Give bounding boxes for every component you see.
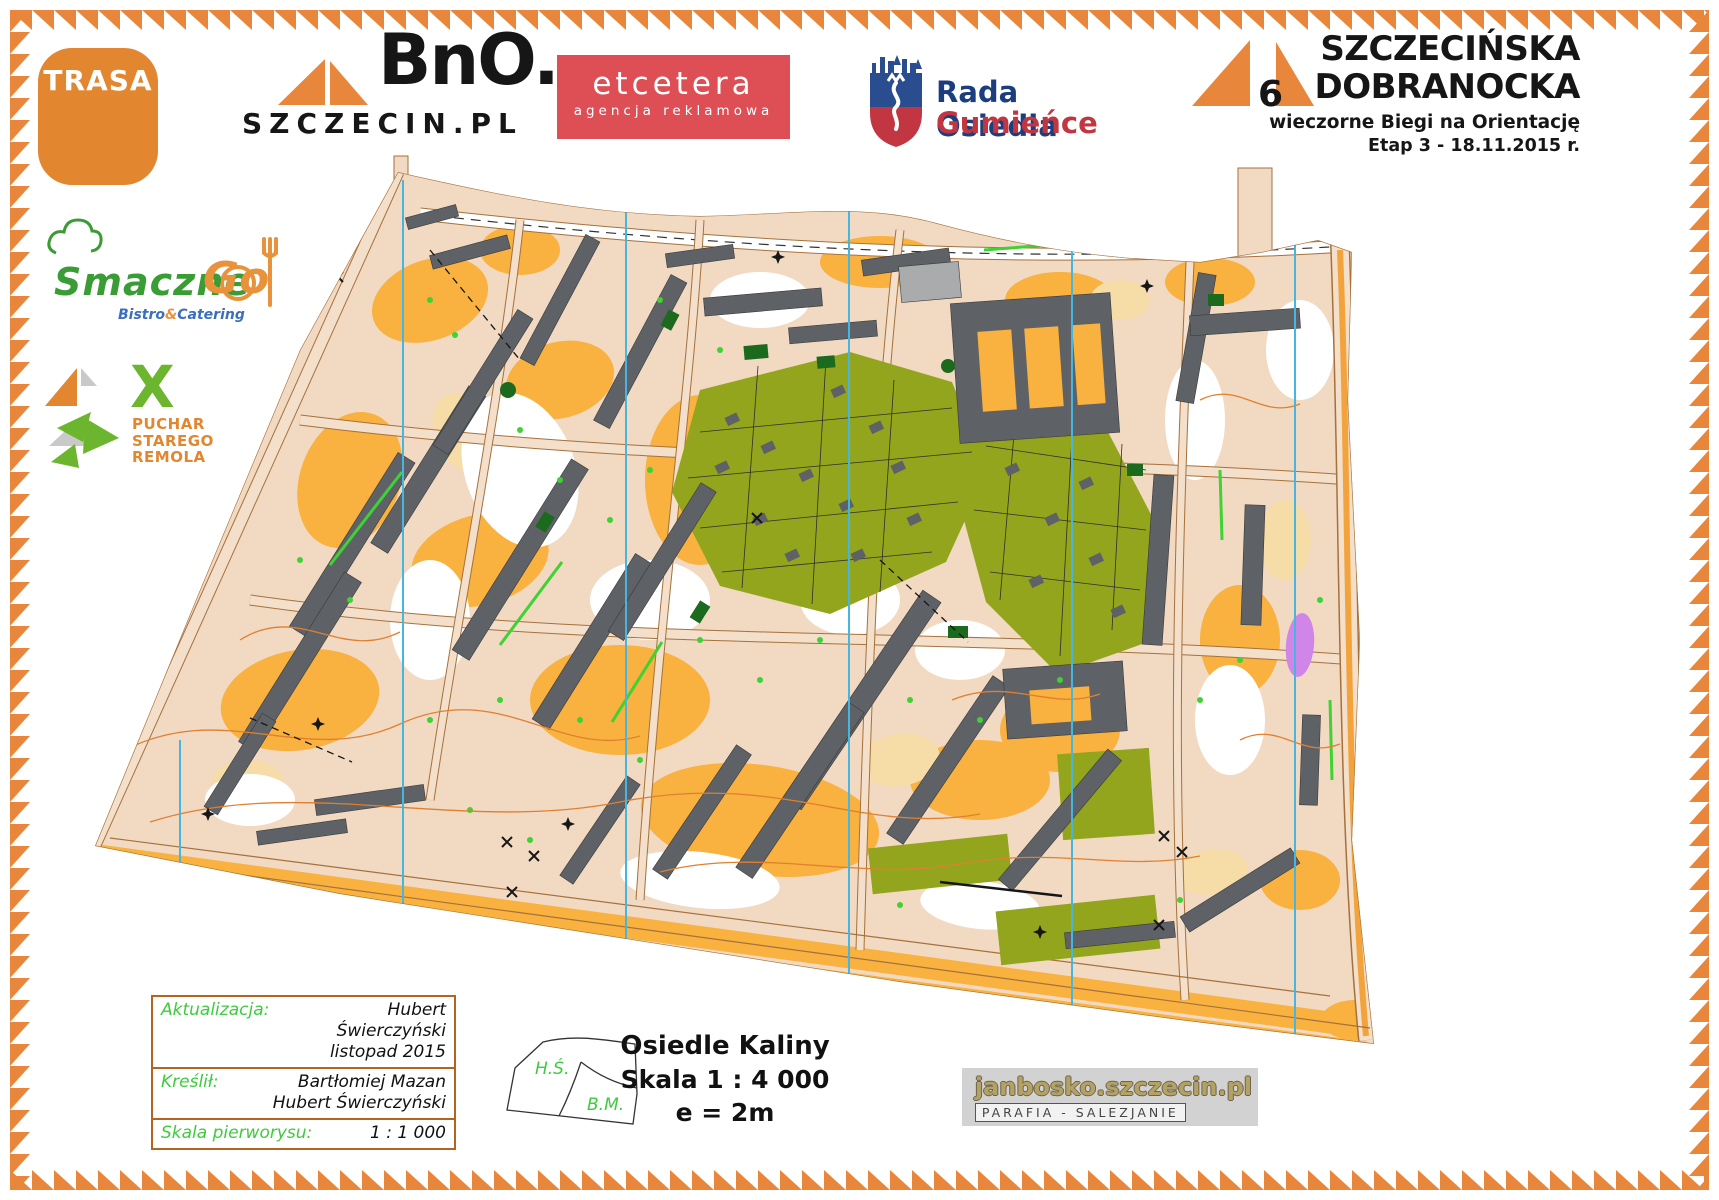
credit-values: Bartłomiej Mazan Hubert Świerczyński xyxy=(273,1072,446,1114)
map-area-name: Osiedle Kaliny xyxy=(560,1030,890,1063)
church-icon xyxy=(968,1073,969,1121)
credit-row-aktualizacja: Aktualizacja: Hubert Świerczyński listop… xyxy=(153,997,454,1069)
puchar-starego-remola-logo: X PUCHAR STAREGO REMOLA xyxy=(45,358,265,473)
puchar-line2: STAREGO xyxy=(132,433,214,450)
smacznego-tagline-amp: & xyxy=(165,307,177,323)
rada-osiedla-logo: Rada Osiedla Gumieńce xyxy=(866,53,1126,153)
credit-value: 1 : 1 000 xyxy=(370,1123,446,1144)
credit-row-kreslil: Kreślił: Bartłomiej Mazan Hubert Świercz… xyxy=(153,1069,454,1120)
etcetera-tagline: agencja reklamowa xyxy=(557,103,790,119)
bno-name: BnO. xyxy=(378,19,558,101)
smacznego-tagline-b: Catering xyxy=(177,307,245,323)
credit-value: listopad 2015 xyxy=(277,1042,446,1063)
bno-logo: BnO. SZCZECIN.PL xyxy=(240,35,540,145)
puchar-line3: REMOLA xyxy=(132,449,214,466)
parafia-logo: janbosko.szczecin.pl PARAFIA - SALEZJANI… xyxy=(962,1068,1258,1126)
map-poster-page: { "page": {"background": "#ffffff", "bor… xyxy=(0,0,1719,1200)
smacznego-logo: Smaczne Go Bistro&Catering xyxy=(38,205,288,330)
parafia-tagline: PARAFIA - SALEZJANIE xyxy=(975,1103,1186,1122)
credit-row-skala: Skala pierworysu: 1 : 1 000 xyxy=(153,1120,454,1148)
credit-value: Hubert Świerczyński xyxy=(277,1000,446,1042)
map-title-block: Osiedle Kaliny Skala 1 : 4 000 e = 2m xyxy=(560,1030,890,1129)
credit-value: Bartłomiej Mazan xyxy=(273,1072,446,1093)
map-equidistance: e = 2m xyxy=(560,1096,890,1129)
trasa-label: TRASA xyxy=(43,64,152,97)
smacznego-tagline: Bistro&Catering xyxy=(118,307,245,323)
bno-domain: SZCZECIN.PL xyxy=(242,107,523,140)
rada-line2: Gumieńce xyxy=(936,106,1098,140)
event-triangles-icon xyxy=(1192,36,1317,111)
parafia-text: janbosko.szczecin.pl PARAFIA - SALEZJANI… xyxy=(975,1073,1252,1122)
event-title-line2: DOBRANOCKA xyxy=(1314,68,1580,106)
smacznego-word2: Go xyxy=(203,253,269,304)
gumience-crest-icon xyxy=(866,53,928,153)
map-scale: Skala 1 : 4 000 xyxy=(560,1063,890,1096)
puchar-x: X xyxy=(130,358,175,416)
smacznego-tagline-a: Bistro xyxy=(118,307,165,323)
event-title-line1: SZCZECIŃSKA xyxy=(1314,30,1580,68)
event-subtitle: wieczorne Biegi na Orientację xyxy=(1269,112,1580,133)
event-stage: Etap 3 - 18.11.2015 r. xyxy=(1368,136,1580,156)
credit-value: Hubert Świerczyński xyxy=(273,1093,446,1114)
etcetera-name: etcetera xyxy=(557,69,790,99)
credit-values: Hubert Świerczyński listopad 2015 xyxy=(277,1000,446,1063)
trasa-badge: TRASA xyxy=(38,48,158,185)
puchar-line1: PUCHAR xyxy=(132,416,214,433)
credits-box: Aktualizacja: Hubert Świerczyński listop… xyxy=(151,995,456,1150)
puchar-text: PUCHAR STAREGO REMOLA xyxy=(132,416,214,466)
etcetera-logo: etcetera agencja reklamowa xyxy=(557,55,790,139)
credit-label: Skala pierworysu: xyxy=(161,1123,312,1144)
event-header: 6 SZCZECIŃSKA DOBRANOCKA wieczorne Biegi… xyxy=(1150,30,1580,165)
parafia-site: janbosko.szczecin.pl xyxy=(975,1073,1252,1101)
bno-triangles-icon xyxy=(276,55,376,107)
credit-label: Kreślił: xyxy=(161,1072,219,1114)
puchar-triangles-icon xyxy=(45,366,130,476)
event-number: 6 xyxy=(1258,74,1283,115)
credit-label: Aktualizacja: xyxy=(161,1000,269,1063)
event-title: SZCZECIŃSKA DOBRANOCKA xyxy=(1314,30,1580,106)
credit-values: 1 : 1 000 xyxy=(370,1123,446,1144)
